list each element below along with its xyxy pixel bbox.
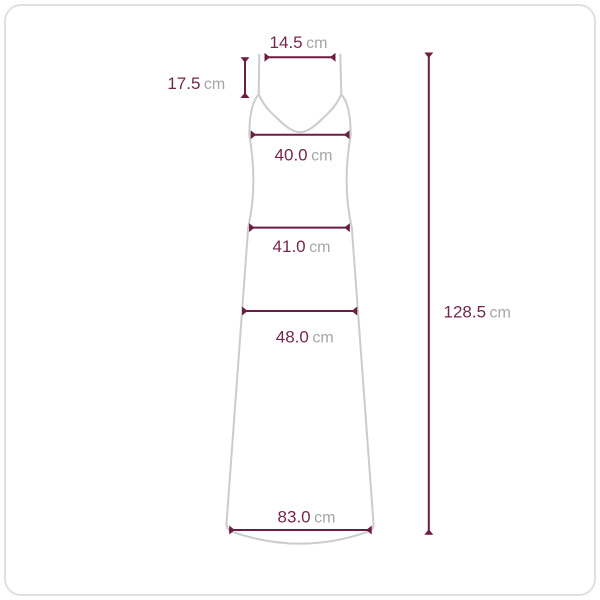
svg-text:83.0cm: 83.0cm: [278, 508, 336, 527]
svg-text:41.0cm: 41.0cm: [273, 237, 331, 256]
svg-text:128.5cm: 128.5cm: [444, 302, 511, 321]
svg-text:48.0cm: 48.0cm: [276, 328, 334, 347]
svg-text:17.5cm: 17.5cm: [167, 74, 225, 93]
svg-text:14.5cm: 14.5cm: [270, 33, 328, 52]
svg-text:40.0cm: 40.0cm: [275, 146, 333, 165]
